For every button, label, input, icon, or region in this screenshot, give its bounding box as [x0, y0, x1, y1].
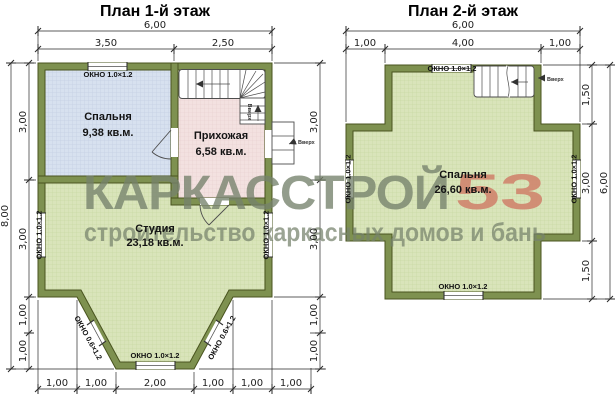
floor2-dim-right-2: 3,00 — [581, 172, 592, 194]
floor2-bedroom-area: 26,60 кв.м. — [434, 184, 491, 196]
floor1-window-bay-front — [136, 361, 175, 370]
floor2-window-top-label: ОКНО 1.0×1.2 — [428, 64, 477, 73]
floor1-bedroom-area: 9,38 кв.м. — [83, 127, 134, 139]
floor1-window-bay-front-label: ОКНО 1.0×1.2 — [131, 351, 180, 360]
floor2-staircase — [474, 66, 545, 97]
floor2-dim-top-1: 1,00 — [354, 38, 376, 49]
floor1-hall-area: 6,58 кв.м. — [196, 146, 247, 158]
floor2-dim-right-3: 1,50 — [581, 260, 592, 282]
floor1-entry-up-label: Вверх — [298, 140, 316, 146]
floor1-stairs-up-label: Вверх — [246, 104, 252, 122]
floor1-dim-side-3: 1,00 — [18, 304, 29, 326]
floor1-dim-bottom-4: 1,00 — [202, 378, 224, 389]
floor1-studio-name: Студия — [135, 223, 175, 235]
floor1-dim-right-3: 1,00 — [309, 304, 320, 326]
floor2-bedroom-name: Спальня — [439, 169, 487, 181]
floor1-window-right-label: ОКНО 1.0×1.2 — [262, 211, 271, 260]
floor2-window-right-label: ОКНО 1.0×1.2 — [570, 155, 579, 204]
floor1-dim-bottom-3: 2,00 — [144, 378, 166, 389]
floor1-dim-right-4: 1,00 — [309, 340, 320, 362]
floor2-window-left-label: ОКНО 1.0×1.2 — [344, 155, 353, 204]
floor1-dim-bottom-1: 1,00 — [46, 378, 68, 389]
floor1-dim-top-right: 2,50 — [212, 38, 234, 49]
floor1-bedroom-floor — [45, 70, 171, 176]
floor1-window-left-label: ОКНО 1.0×1.2 — [35, 211, 44, 260]
floor1-dim-side-total: 8,00 — [0, 205, 11, 227]
floor1-title: План 1-й этаж — [100, 3, 211, 20]
floor2-stairs-up-label: Вверх — [547, 77, 565, 83]
floor1-studio-area: 23,18 кв.м. — [126, 237, 183, 249]
floor1-dim-side-4: 1,00 — [18, 340, 29, 362]
floor1-dim-side-2: 3,00 — [18, 228, 29, 250]
floor1-bedroom-name: Спальня — [84, 111, 132, 123]
floor2-dim-top-2: 4,00 — [452, 38, 474, 49]
floor1-entry-stoop — [272, 122, 296, 164]
floor1-dim-bottom-5: 1,00 — [241, 378, 263, 389]
floor-plans-canvas: КАРКАССТРОЙ 53 строительство каркасных д… — [0, 0, 615, 404]
floor1-dim-top-left: 3,50 — [95, 38, 117, 49]
floor2-title: План 2-й этаж — [408, 3, 519, 20]
floor2-dim-top-total: 6,00 — [452, 20, 474, 31]
floor2-window-bottom-label: ОКНО 1.0×1.2 — [439, 282, 488, 291]
floor1-hall-name: Прихожая — [194, 130, 248, 142]
floor2-dim-right-total: 6,00 — [599, 172, 610, 194]
floor1-dim-side-1: 3,00 — [18, 111, 29, 133]
floor2-dim-top-3: 1,00 — [549, 38, 571, 49]
floor1-dim-right-1: 3,00 — [309, 111, 320, 133]
floor1-dim-top-total: 6,00 — [144, 20, 166, 31]
floor1-dim-bottom-2: 1,00 — [85, 378, 107, 389]
floor1-window-top-label: ОКНО 1.0×1.2 — [84, 70, 133, 79]
floor1-dim-right-2: 3,00 — [309, 228, 320, 250]
floor2-window-bottom — [444, 291, 483, 300]
floor1-door-opening-bedroom — [171, 128, 178, 157]
floor2-dim-right-1: 1,50 — [581, 84, 592, 106]
floor1-door-opening-entry — [265, 130, 272, 158]
floor-plan-sheet: КАРКАССТРОЙ 53 строительство каркасных д… — [0, 0, 615, 404]
floor1-dim-bottom-6: 1,00 — [280, 378, 302, 389]
